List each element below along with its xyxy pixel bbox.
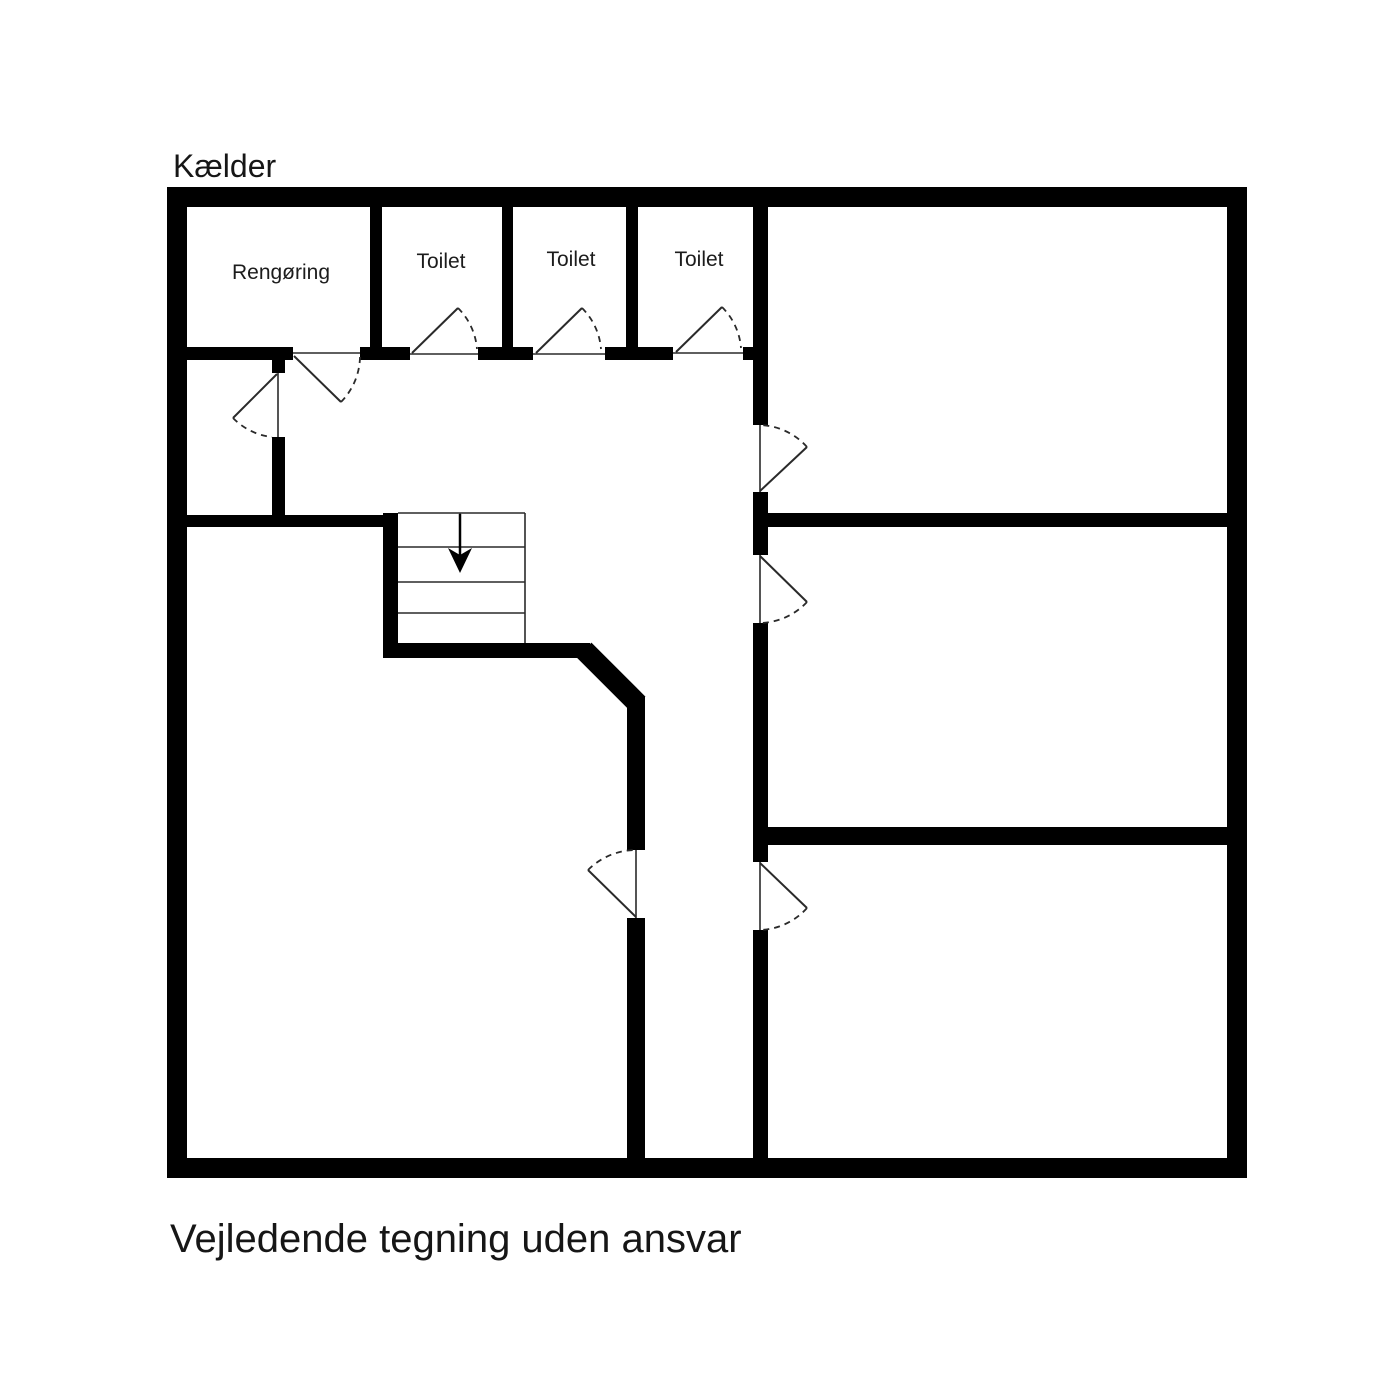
door-toilet-3: [673, 307, 743, 353]
door-leaf: [760, 447, 807, 491]
outer-wall-left: [167, 187, 187, 1178]
door-arc: [458, 308, 477, 349]
outer-wall-top: [167, 187, 1247, 207]
left-room-wall: [272, 437, 285, 527]
door-leaf: [588, 870, 636, 917]
door-right-room-top: [760, 425, 807, 492]
wall-bottomleft-room-top: [167, 515, 397, 527]
door-arc: [582, 308, 601, 349]
door-right-room-middle: [760, 555, 807, 623]
center-wall-lower: [627, 918, 645, 1178]
diagonal-wall: [584, 650, 638, 704]
room-label-toilet-3: Toilet: [674, 248, 723, 271]
outer-wall-bottom: [167, 1158, 1247, 1178]
floor-plan-drawing: Kælder: [0, 0, 1400, 1400]
door-arc: [722, 307, 741, 348]
left-room-wall-stub: [272, 360, 285, 373]
door-arc: [760, 425, 807, 447]
page-title: Kælder: [173, 148, 277, 184]
right-rooms-divider-2: [768, 827, 1227, 845]
wall-toilet1-toilet2: [502, 207, 513, 360]
door-rengoring: [293, 353, 360, 402]
door-arc: [760, 908, 807, 930]
right-rooms-divider-1: [768, 513, 1227, 527]
stair-wall-bottom: [398, 643, 590, 658]
corridor-wall-segment: [753, 930, 768, 1178]
wall-toilet2-toilet3: [626, 207, 638, 360]
outer-walls: [167, 187, 1247, 1178]
room-label-toilet-2: Toilet: [546, 248, 595, 271]
corridor-wall-segment: [753, 492, 768, 555]
room-labels: Rengøring Toilet Toilet Toilet: [232, 248, 724, 284]
door-leaf: [760, 556, 807, 602]
door-leaf: [536, 308, 582, 353]
room-label-toilet-1: Toilet: [416, 250, 465, 273]
disclaimer-text: Vejledende tegning uden ansvar: [170, 1217, 742, 1261]
doors: [233, 307, 807, 930]
door-toilet-1: [410, 308, 478, 354]
door-arc: [233, 418, 272, 437]
wall-segment: [360, 347, 410, 360]
door-leaf: [760, 863, 807, 908]
door-left-room: [233, 373, 278, 437]
stairs: [398, 513, 525, 643]
door-leaf: [294, 356, 341, 402]
door-arc: [760, 602, 807, 623]
stair-wall-left: [383, 513, 398, 658]
door-arc: [588, 850, 636, 870]
door-leaf: [412, 308, 458, 353]
wall-segment: [180, 347, 293, 360]
corridor-wall-segment: [753, 207, 768, 425]
corridor-wall-segment: [753, 623, 768, 862]
room-label-rengoring: Rengøring: [232, 261, 330, 284]
door-leaf: [676, 307, 722, 352]
door-arc: [341, 357, 360, 402]
door-right-room-bottom: [760, 862, 807, 930]
stairs-down-arrow-icon: [448, 514, 472, 573]
door-bottom-left-room: [588, 850, 636, 918]
floor-plan-page: Kælder: [0, 0, 1400, 1400]
wall-rengoring-toilet1: [370, 207, 382, 360]
door-toilet-2: [533, 308, 605, 354]
center-wall-upper: [627, 697, 645, 850]
outer-wall-right: [1227, 187, 1247, 1178]
wall-segment: [605, 347, 673, 360]
door-leaf: [233, 374, 277, 418]
